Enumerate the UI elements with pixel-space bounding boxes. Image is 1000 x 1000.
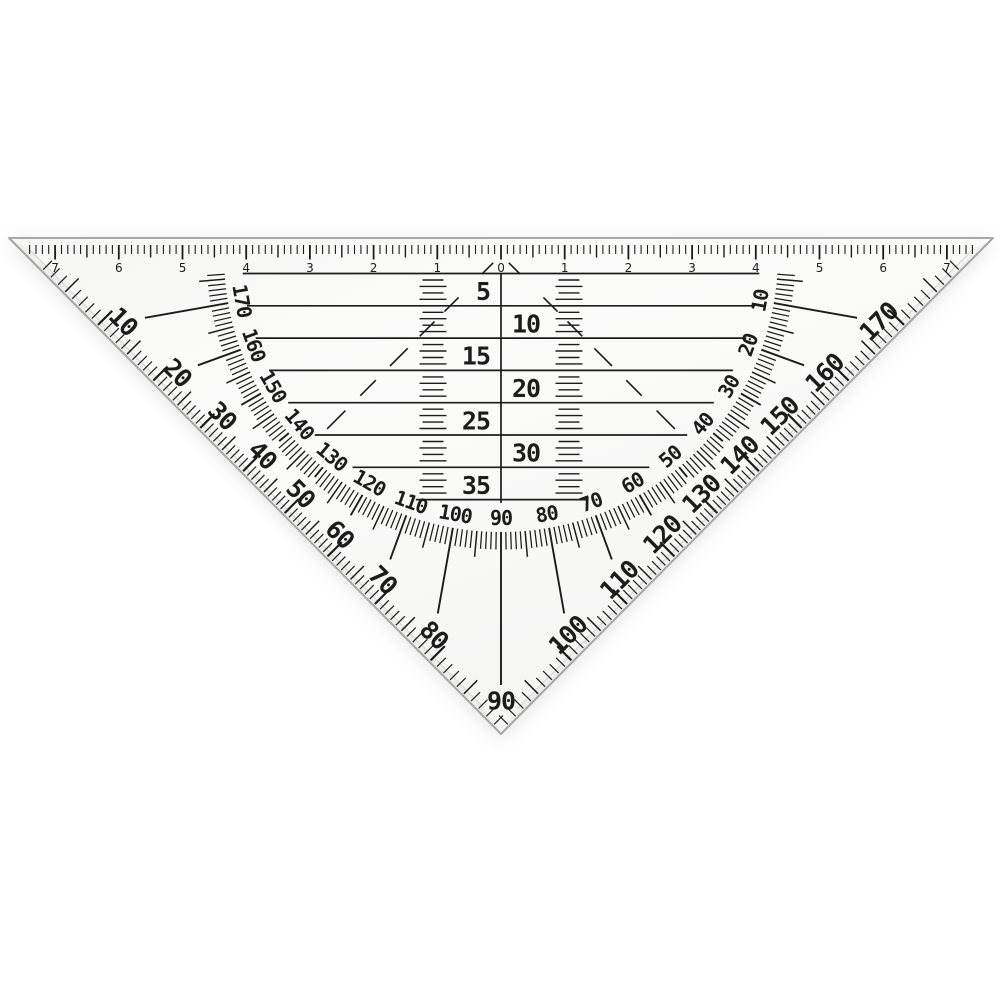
- set-square-protractor: 7654321012345675101520253035102030405060…: [0, 0, 1000, 1000]
- parallel-line-label: 5: [476, 277, 490, 306]
- ruler-number: 5: [179, 261, 187, 275]
- parallel-line-label: 20: [512, 374, 540, 403]
- ruler-number: 5: [816, 261, 824, 275]
- inner-degree-label: 80: [534, 500, 560, 527]
- parallel-line-label: 25: [462, 406, 490, 435]
- ruler-number: 6: [115, 261, 123, 275]
- parallel-line-label: 30: [512, 439, 540, 468]
- parallel-line-label: 15: [462, 342, 490, 371]
- parallel-line-label: 35: [462, 471, 490, 500]
- degree-tick: [511, 532, 512, 550]
- parallel-line-label: 10: [512, 309, 540, 338]
- degree-tick: [491, 532, 492, 550]
- photo-background: 7654321012345675101520253035102030405060…: [0, 0, 1000, 1000]
- ruler-number: 6: [879, 261, 887, 275]
- inner-degree-label: 90: [490, 506, 512, 530]
- inner-degree-label: 10: [746, 288, 773, 314]
- protractor-photo: 7654321012345675101520253035102030405060…: [0, 0, 1000, 1000]
